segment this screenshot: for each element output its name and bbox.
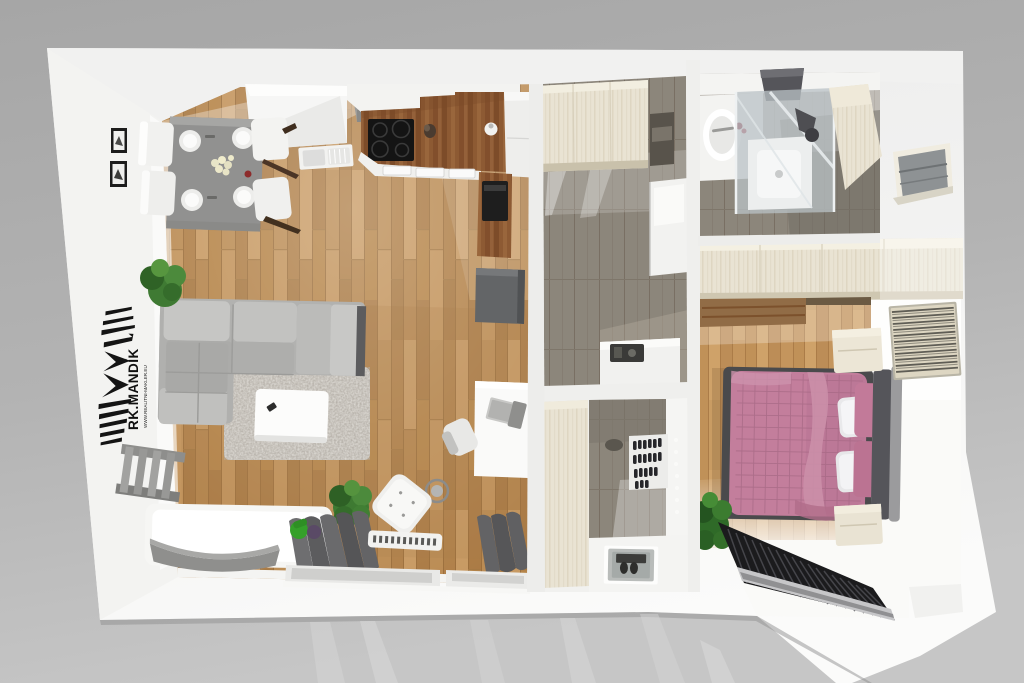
svg-text:WWW.REALITNI-MAKLER.EU: WWW.REALITNI-MAKLER.EU <box>143 365 148 428</box>
svg-text:RK.MANDÍK: RK.MANDÍK <box>126 348 141 430</box>
